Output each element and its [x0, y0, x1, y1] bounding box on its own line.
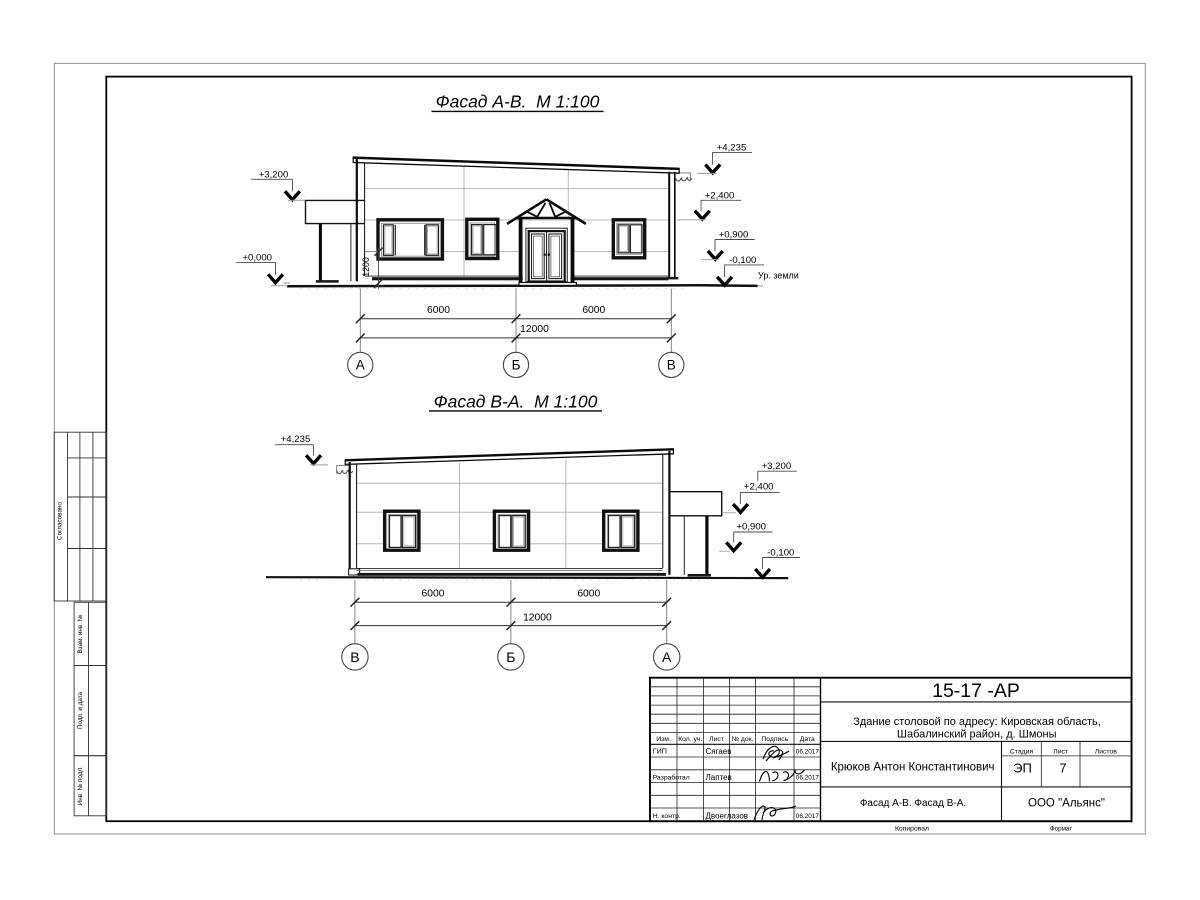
svg-text:6000: 6000 [577, 588, 600, 599]
svg-text:ГИП: ГИП [653, 747, 667, 756]
svg-text:7: 7 [1059, 761, 1066, 776]
svg-text:А: А [356, 358, 365, 373]
svg-text:+2,400: +2,400 [744, 482, 774, 493]
svg-text:Копировал: Копировал [895, 825, 929, 832]
svg-text:Изм.: Изм. [656, 736, 671, 743]
svg-text:ЭП: ЭП [1013, 761, 1032, 776]
svg-text:Лаптев: Лаптев [706, 773, 732, 782]
svg-text:+0,900: +0,900 [736, 522, 766, 533]
svg-text:А: А [662, 649, 672, 665]
svg-text:Дата: Дата [800, 736, 815, 743]
svg-text:6000: 6000 [582, 305, 605, 316]
svg-text:Б: Б [506, 649, 515, 665]
svg-text:06.2017: 06.2017 [796, 749, 820, 756]
svg-text:Сягаев: Сягаев [706, 747, 732, 756]
svg-text:Подпись: Подпись [761, 736, 788, 743]
svg-text:12000: 12000 [523, 612, 552, 623]
svg-text:1200: 1200 [361, 257, 371, 277]
svg-text:Лист: Лист [1053, 748, 1068, 755]
svg-text:№ док.: № док. [732, 736, 754, 743]
svg-text:+3,200: +3,200 [259, 169, 289, 180]
svg-text:6000: 6000 [422, 588, 445, 599]
svg-text:Фасад А-В. Фасад В-А.: Фасад А-В. Фасад В-А. [860, 798, 966, 809]
svg-text:Взам. инв. №: Взам. инв. № [77, 614, 84, 653]
svg-text:Разработал: Разработал [653, 774, 690, 782]
svg-text:Шабалинский район, д. Шмоны: Шабалинский район, д. Шмоны [897, 728, 1057, 740]
svg-text:Лист: Лист [709, 736, 724, 743]
svg-text:+4,235: +4,235 [281, 434, 311, 445]
svg-text:Здание столовой по адресу: Кир: Здание столовой по адресу: Кировская обл… [853, 716, 1101, 728]
svg-text:6000: 6000 [427, 305, 450, 316]
svg-text:Формат: Формат [1050, 825, 1072, 832]
svg-text:15-17 -АР: 15-17 -АР [932, 680, 1020, 702]
svg-text:Б: Б [512, 358, 521, 373]
svg-text:Стадия: Стадия [1010, 748, 1033, 755]
svg-text:06.2017: 06.2017 [796, 813, 820, 820]
svg-text:12000: 12000 [520, 324, 549, 335]
svg-text:Крюков Антон Константинович: Крюков Антон Константинович [831, 762, 995, 774]
svg-text:-0,100: -0,100 [729, 255, 756, 266]
svg-text:В: В [350, 649, 359, 665]
svg-text:+0,900: +0,900 [719, 229, 749, 240]
svg-text:+3,200: +3,200 [762, 461, 792, 472]
svg-text:06.2017: 06.2017 [796, 774, 820, 781]
svg-text:Кол. уч.: Кол. уч. [678, 736, 702, 743]
svg-text:В: В [667, 358, 676, 373]
svg-text:Согласовано: Согласовано [57, 502, 64, 540]
svg-text:Фасад А-В. М 1:100: Фасад А-В. М 1:100 [436, 92, 600, 112]
svg-text:Подп. и дата: Подп. и дата [77, 691, 84, 729]
svg-text:Фасад В-А. М 1:100: Фасад В-А. М 1:100 [434, 391, 598, 411]
svg-text:Инв. № подл.: Инв. № подл. [77, 766, 84, 805]
svg-text:Ур. земли: Ур. земли [758, 270, 799, 280]
svg-text:Листов: Листов [1095, 748, 1117, 755]
svg-text:ООО "Альянс": ООО "Альянс" [1028, 797, 1105, 809]
svg-text:-0,100: -0,100 [767, 548, 794, 559]
svg-text:Н. контр.: Н. контр. [653, 813, 681, 820]
svg-text:Двоеглазов: Двоеглазов [706, 812, 749, 821]
